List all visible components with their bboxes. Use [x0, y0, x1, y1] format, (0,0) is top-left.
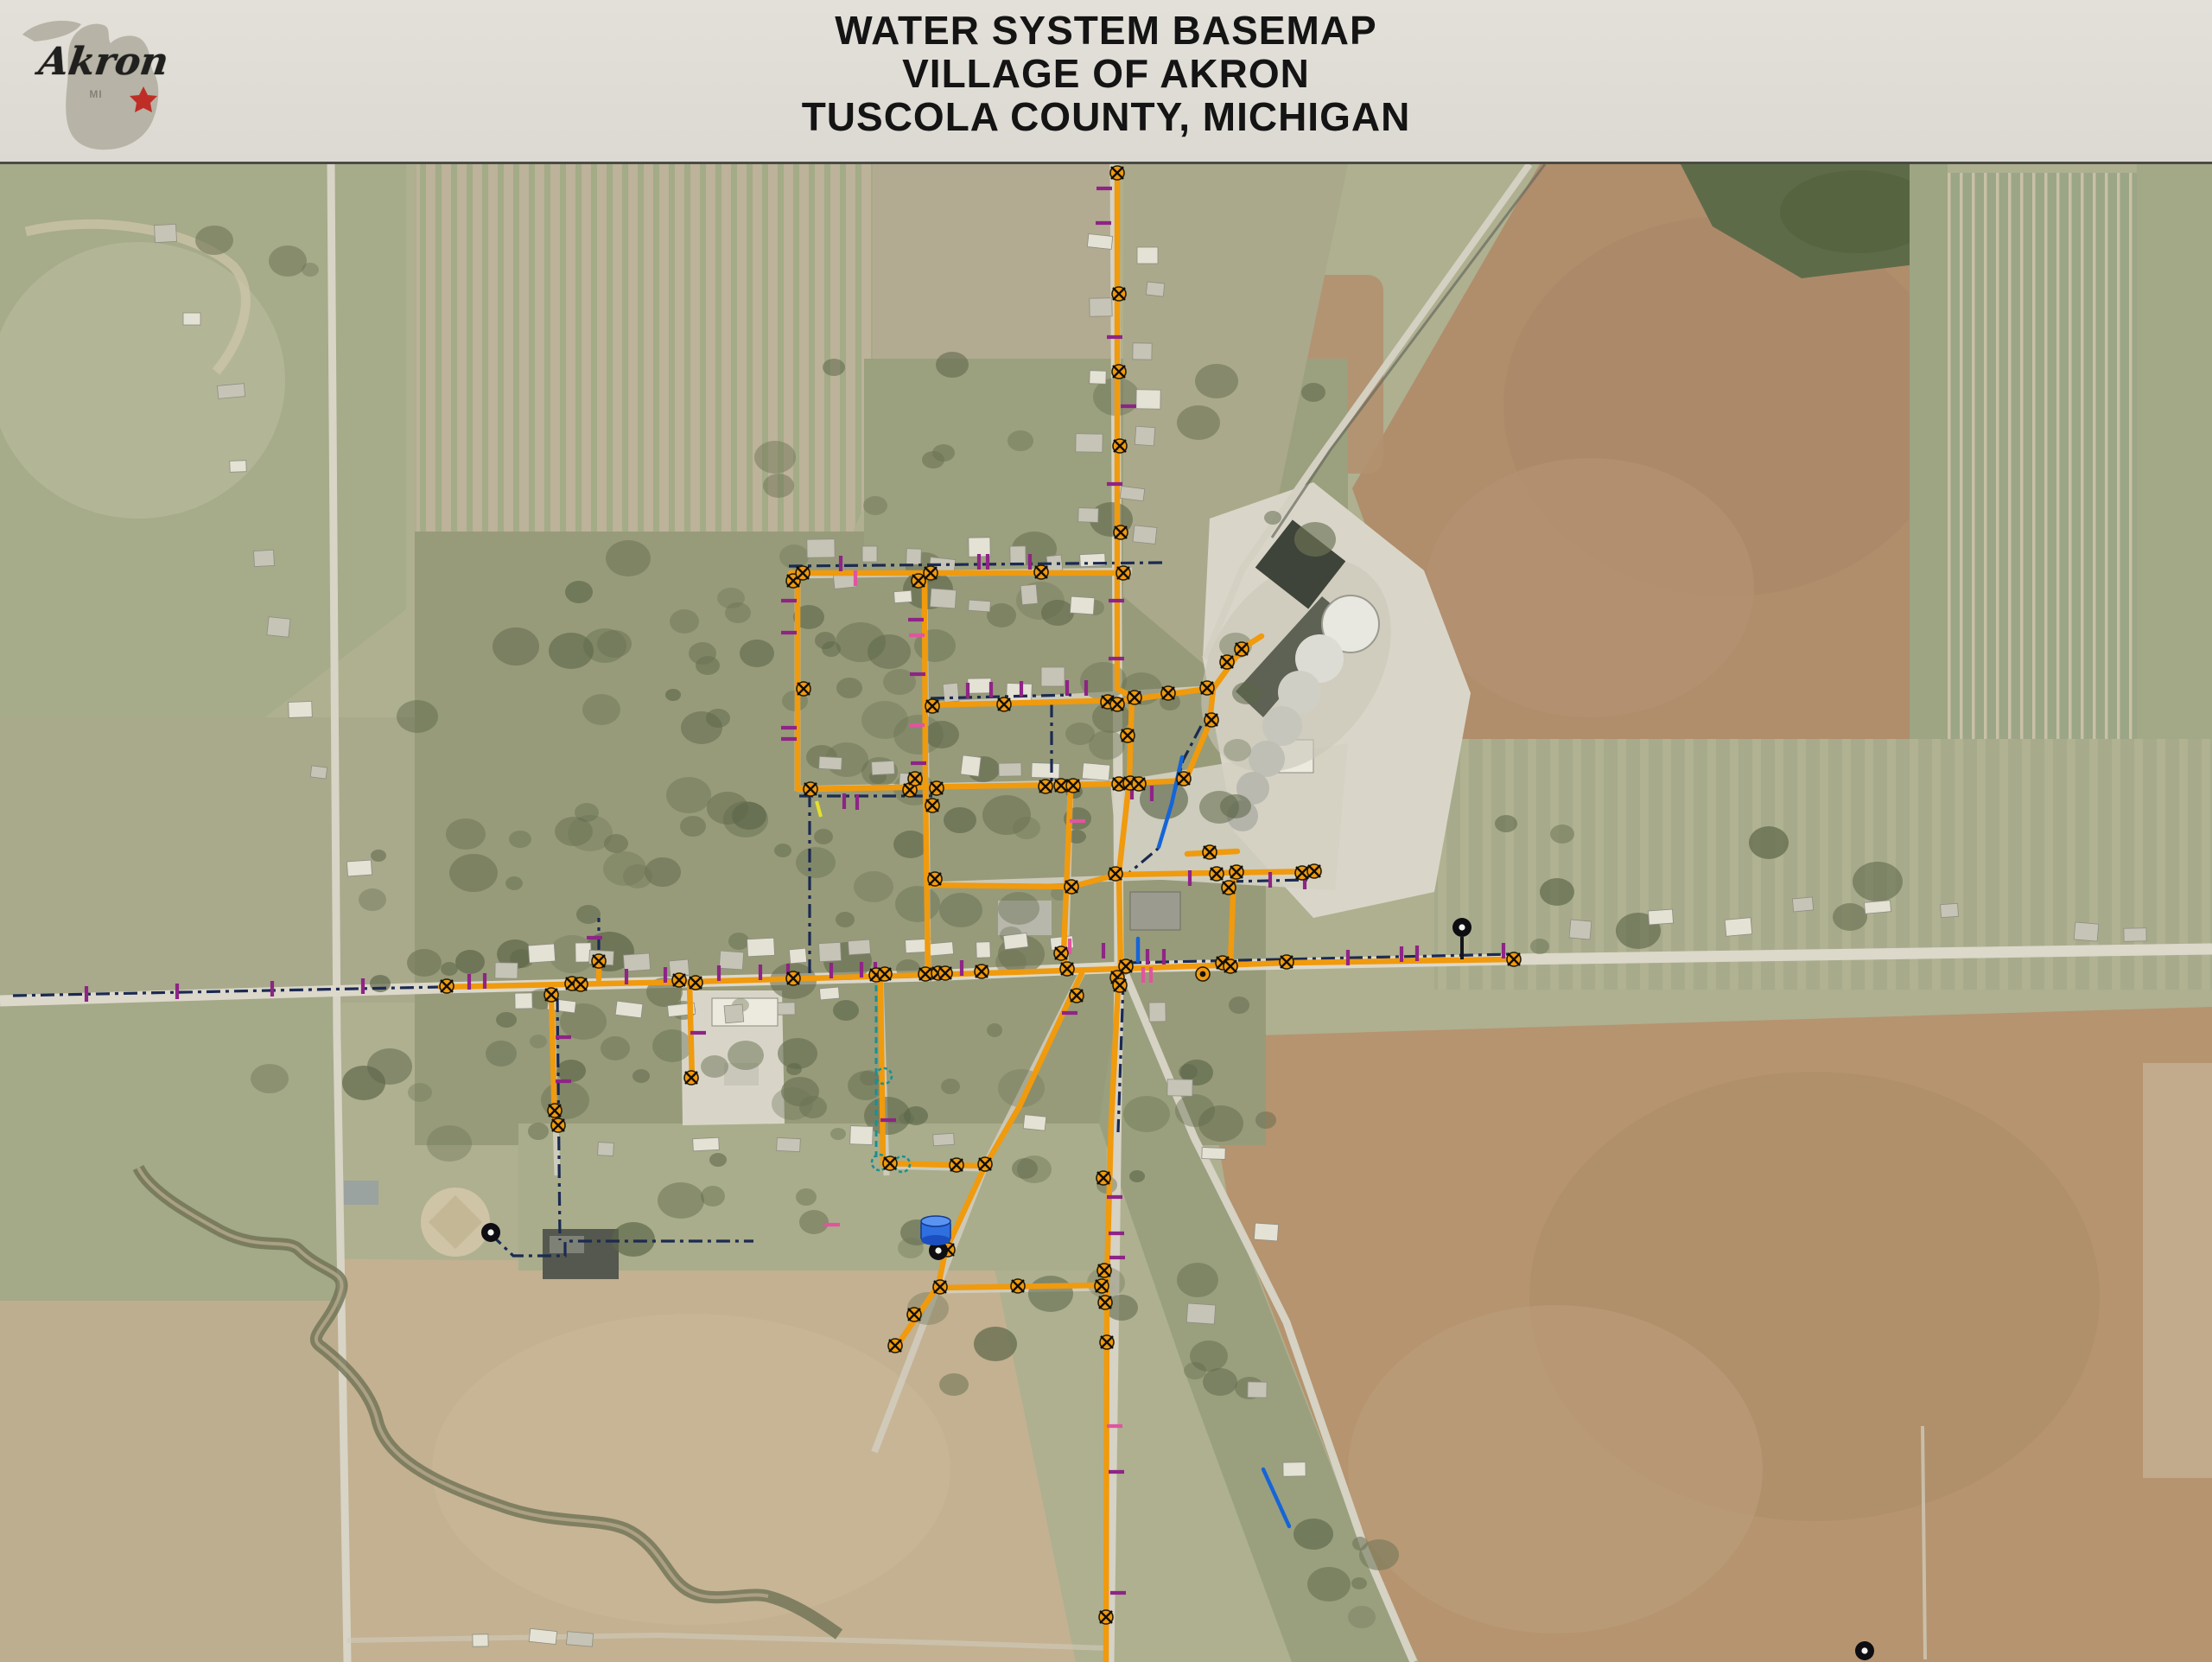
building	[872, 761, 895, 774]
tree	[895, 886, 940, 922]
gate-valve-icon	[1200, 681, 1214, 695]
tree	[939, 893, 982, 927]
tree	[1089, 730, 1125, 760]
tree	[269, 245, 307, 277]
gate-valve-icon	[797, 682, 810, 696]
well-icon	[481, 1223, 500, 1242]
tree	[1351, 1577, 1367, 1589]
gate-valve-icon	[1109, 867, 1122, 881]
tree	[974, 1327, 1017, 1361]
tree	[1294, 1519, 1333, 1550]
tree	[407, 949, 442, 977]
gate-valve-icon	[1177, 772, 1191, 786]
tree	[1359, 1539, 1399, 1570]
gate-valve-icon	[1054, 946, 1068, 960]
gate-valve-icon	[689, 976, 702, 990]
gate-valve-icon	[912, 574, 925, 588]
tree	[1229, 997, 1249, 1014]
tree	[706, 709, 730, 728]
tree	[666, 777, 711, 813]
title-line-2: VILLAGE OF AKRON	[0, 52, 2212, 95]
gate-valve-icon	[930, 781, 944, 795]
tree	[632, 1069, 650, 1083]
tree	[707, 792, 748, 825]
tree	[1123, 1096, 1170, 1132]
building	[1137, 247, 1158, 264]
building	[693, 1137, 720, 1151]
tree	[612, 1222, 655, 1257]
building	[1003, 933, 1028, 949]
tree	[796, 847, 836, 878]
building	[1020, 584, 1038, 604]
tree	[1203, 1368, 1237, 1396]
building	[267, 617, 290, 637]
gate-valve-icon	[925, 799, 939, 812]
gate-valve-icon	[1098, 1296, 1112, 1309]
tree	[814, 829, 833, 844]
gate-valve-icon	[1070, 989, 1084, 1003]
tree	[854, 871, 893, 902]
tree	[1177, 405, 1220, 440]
gate-valve-icon	[804, 782, 817, 796]
water-main-second-vertical	[925, 573, 928, 975]
tree	[670, 609, 699, 634]
tree	[408, 1083, 432, 1102]
tree	[941, 1079, 960, 1094]
building	[1569, 920, 1592, 939]
tree	[1177, 1263, 1218, 1297]
village-logo: Akron MI	[5, 2, 206, 161]
tree	[493, 627, 539, 665]
gate-valve-icon	[1507, 952, 1521, 966]
tree	[1007, 430, 1033, 451]
tree	[709, 1153, 727, 1167]
gate-valve-icon	[1222, 881, 1236, 895]
gate-valve-icon	[1128, 691, 1141, 704]
gate-valve-icon	[938, 966, 952, 980]
gate-valve-icon	[978, 1157, 992, 1171]
building	[615, 1001, 643, 1018]
tree	[446, 818, 486, 850]
building	[254, 550, 275, 566]
tree	[195, 226, 233, 255]
tree	[623, 864, 652, 888]
gate-valve-icon	[1113, 439, 1127, 453]
building	[529, 1628, 556, 1644]
building	[862, 546, 877, 562]
building	[623, 953, 650, 971]
building	[1133, 525, 1157, 544]
building	[1146, 282, 1164, 296]
tree	[1198, 1105, 1243, 1142]
tree	[359, 888, 386, 911]
building	[1792, 897, 1813, 912]
gate-valve-icon	[933, 1280, 947, 1294]
tree	[1195, 364, 1238, 398]
gate-valve-icon	[1132, 777, 1146, 791]
tree	[556, 1060, 586, 1082]
tree	[998, 892, 1039, 925]
tree	[728, 933, 749, 950]
aerial-photo	[0, 0, 2212, 1662]
tree	[1190, 1340, 1228, 1372]
gate-valve-icon	[1235, 642, 1249, 656]
tree	[371, 850, 386, 862]
tree	[1550, 825, 1574, 844]
building	[230, 461, 246, 473]
building	[183, 313, 200, 325]
gate-valve-icon	[1110, 697, 1124, 711]
tree	[796, 1188, 817, 1206]
tree	[689, 642, 716, 665]
gate-valve-icon	[925, 699, 939, 713]
building	[1070, 596, 1094, 614]
tree	[1749, 826, 1789, 859]
building	[217, 384, 245, 399]
building	[894, 590, 912, 602]
gate-valve-icon	[924, 566, 938, 580]
tree	[781, 1077, 819, 1106]
tree	[763, 474, 794, 498]
tree	[397, 700, 438, 733]
gate-valve-icon	[1112, 365, 1126, 379]
tree	[823, 359, 845, 376]
building	[999, 763, 1021, 776]
tree	[898, 1238, 924, 1258]
tree	[1232, 682, 1262, 704]
building	[1090, 371, 1107, 385]
water-system-basemap-page: WATER SYSTEM BASEMAP VILLAGE OF AKRON TU…	[0, 0, 2212, 1662]
building	[1283, 1462, 1306, 1476]
building	[566, 1632, 593, 1647]
tree	[861, 701, 908, 739]
map-title-bar: WATER SYSTEM BASEMAP VILLAGE OF AKRON TU…	[0, 0, 2212, 164]
tree	[680, 816, 706, 837]
gate-valve-icon	[548, 1104, 562, 1118]
tree	[987, 1023, 1002, 1037]
tree	[799, 1210, 829, 1234]
gate-valve-icon	[1060, 962, 1074, 976]
gate-valve-icon	[1065, 880, 1078, 894]
gate-valve-icon	[907, 1308, 921, 1321]
building	[2124, 928, 2146, 941]
building	[1010, 546, 1026, 564]
tree	[565, 581, 593, 603]
gate-valve-icon	[997, 697, 1011, 711]
gate-valve-icon	[1066, 779, 1080, 793]
building	[778, 1003, 795, 1015]
building	[1120, 486, 1145, 500]
tree	[1307, 1567, 1351, 1602]
building	[961, 755, 982, 776]
building	[777, 1137, 801, 1151]
building	[1865, 901, 1891, 914]
building	[1248, 1382, 1267, 1398]
gate-valve-icon	[1220, 655, 1234, 669]
gate-valve-icon	[918, 967, 932, 981]
building	[528, 944, 555, 963]
tree	[652, 1029, 692, 1062]
tree	[1264, 511, 1281, 525]
tree	[1012, 1158, 1038, 1179]
building	[943, 683, 959, 702]
tree	[944, 807, 976, 833]
tree	[1294, 522, 1336, 557]
gate-valve-icon	[1110, 166, 1124, 180]
tree	[830, 1128, 846, 1140]
gate-valve-icon	[684, 1071, 698, 1085]
title-line-3: TUSCOLA COUNTY, MICHIGAN	[0, 95, 2212, 138]
building	[1202, 1148, 1225, 1160]
tree	[367, 1048, 412, 1085]
building	[1136, 390, 1160, 409]
tree	[1495, 815, 1517, 832]
building	[154, 224, 176, 242]
gate-valve-icon	[574, 977, 588, 991]
gate-valve-icon	[1113, 978, 1127, 992]
building	[1090, 298, 1112, 316]
building	[1725, 918, 1752, 937]
building	[1087, 234, 1112, 250]
gate-valve-icon	[1095, 1279, 1109, 1293]
tree	[427, 1125, 472, 1162]
gate-valve-icon	[1097, 1264, 1111, 1277]
building	[1135, 426, 1154, 445]
building	[575, 943, 591, 962]
tree	[597, 630, 632, 658]
building	[1648, 909, 1673, 925]
building	[807, 539, 835, 558]
building	[346, 860, 372, 876]
gate-valve-icon	[1224, 959, 1237, 973]
tree	[786, 1063, 802, 1075]
building	[1032, 762, 1060, 778]
tree	[496, 1012, 517, 1028]
gate-valve-icon	[908, 772, 922, 786]
gate-valve-icon	[1114, 525, 1128, 539]
tree	[658, 1182, 704, 1219]
building	[969, 600, 991, 612]
tree	[1833, 903, 1867, 931]
tree	[1853, 862, 1903, 901]
gate-valve-icon	[1280, 955, 1294, 969]
tree	[486, 1041, 517, 1067]
tree	[987, 603, 1016, 627]
tree	[1530, 939, 1549, 954]
building	[906, 549, 922, 565]
tree	[1028, 1276, 1073, 1312]
tree	[1199, 791, 1239, 824]
tree	[863, 496, 887, 515]
tree	[449, 854, 498, 892]
tree	[1129, 1170, 1145, 1182]
tree	[925, 721, 959, 748]
title-line-1: WATER SYSTEM BASEMAP	[0, 9, 2212, 52]
well-icon	[1855, 1641, 1874, 1660]
gate-valve-icon	[796, 566, 810, 580]
building	[1041, 667, 1065, 686]
tree	[549, 633, 594, 669]
tree	[575, 803, 599, 822]
tree	[1013, 817, 1040, 839]
tree	[576, 905, 601, 924]
building	[1167, 1079, 1192, 1097]
building	[1149, 1003, 1166, 1022]
building	[1082, 763, 1109, 781]
gate-valve-icon	[950, 1158, 963, 1172]
tree	[1301, 383, 1325, 402]
gate-valve-icon	[1210, 867, 1224, 881]
building	[848, 939, 870, 955]
gate-valve-icon	[1112, 287, 1126, 301]
tree	[1348, 1606, 1376, 1628]
tree	[455, 950, 485, 974]
gate-valve-icon	[592, 954, 606, 968]
building	[747, 938, 775, 957]
tree	[1041, 600, 1074, 626]
gate-valve-icon	[1121, 729, 1135, 742]
building	[289, 702, 313, 718]
gate-valve-icon	[975, 965, 988, 978]
building	[515, 993, 532, 1009]
building	[819, 987, 839, 1000]
tree	[740, 640, 774, 667]
building	[789, 948, 806, 964]
building	[850, 1126, 874, 1145]
gate-valve-icon	[1116, 566, 1130, 580]
map-title: WATER SYSTEM BASEMAP VILLAGE OF AKRON TU…	[0, 9, 2212, 138]
tree	[582, 694, 620, 725]
tree	[836, 912, 855, 927]
tree	[665, 689, 681, 701]
building	[976, 942, 991, 958]
logo-text: Akron	[14, 40, 193, 84]
gate-valve-icon	[878, 967, 892, 981]
tree	[1224, 739, 1251, 761]
gate-valve-icon	[928, 872, 942, 886]
gate-valve-icon	[1011, 1279, 1025, 1293]
tree	[606, 540, 651, 576]
building	[724, 1004, 744, 1023]
building	[930, 589, 956, 608]
gate-valve-icon	[1203, 845, 1217, 859]
tree	[530, 1035, 547, 1048]
tree	[528, 1123, 549, 1140]
tree	[833, 1000, 859, 1021]
gate-valve-icon	[1099, 1610, 1113, 1624]
tree	[725, 602, 751, 623]
gate-valve-icon	[1205, 713, 1218, 727]
tree	[774, 844, 791, 857]
tree	[601, 1036, 630, 1060]
tree	[505, 876, 523, 890]
building	[1941, 903, 1959, 917]
building	[819, 756, 842, 769]
building	[495, 963, 518, 978]
logo-state-label: MI	[57, 88, 135, 100]
gate-valve-icon	[551, 1118, 565, 1132]
building	[598, 1143, 614, 1156]
gate-valve-icon	[1039, 780, 1052, 793]
building	[1023, 1115, 1046, 1131]
tree	[1255, 1111, 1276, 1129]
tree	[836, 678, 862, 698]
tree	[728, 1041, 764, 1070]
building	[1186, 1303, 1215, 1324]
building	[1080, 553, 1106, 566]
tree	[701, 1186, 725, 1207]
meter-icon	[1196, 967, 1210, 981]
building	[1254, 1223, 1278, 1241]
tree	[836, 622, 886, 662]
building	[818, 942, 841, 961]
tree	[441, 962, 458, 976]
gate-valve-icon	[1034, 565, 1048, 579]
tree	[936, 352, 969, 378]
tree	[899, 1112, 914, 1124]
tree	[848, 1071, 884, 1100]
gate-valve-icon	[888, 1339, 902, 1353]
building	[968, 678, 991, 693]
tree	[932, 444, 955, 462]
storage-tank-icon	[921, 1216, 950, 1245]
building	[473, 1634, 488, 1646]
building	[933, 1133, 955, 1146]
gate-valve-icon	[440, 979, 454, 993]
gate-valve-icon	[1161, 686, 1175, 700]
building	[1076, 434, 1103, 453]
gate-valve-icon	[544, 988, 558, 1002]
tree	[251, 1064, 289, 1093]
gate-valve-icon	[1230, 865, 1243, 879]
gate-valve-icon	[1100, 1335, 1114, 1349]
tree	[939, 1373, 969, 1396]
building	[927, 942, 953, 956]
building	[719, 951, 743, 970]
tree	[701, 1055, 728, 1078]
tree	[1540, 878, 1574, 906]
building	[969, 538, 990, 557]
tree	[754, 441, 796, 474]
building	[310, 766, 327, 779]
building	[2074, 922, 2099, 941]
tree	[893, 831, 928, 858]
tree	[509, 831, 531, 848]
water-main-south-cross	[883, 1163, 985, 1166]
gate-valve-icon	[1307, 864, 1321, 878]
gate-valve-icon	[672, 973, 686, 987]
gate-valve-icon	[1096, 1171, 1110, 1185]
building	[1078, 508, 1099, 523]
gate-valve-icon	[883, 1156, 897, 1170]
gate-valve-icon	[786, 971, 800, 985]
building	[1133, 343, 1152, 360]
